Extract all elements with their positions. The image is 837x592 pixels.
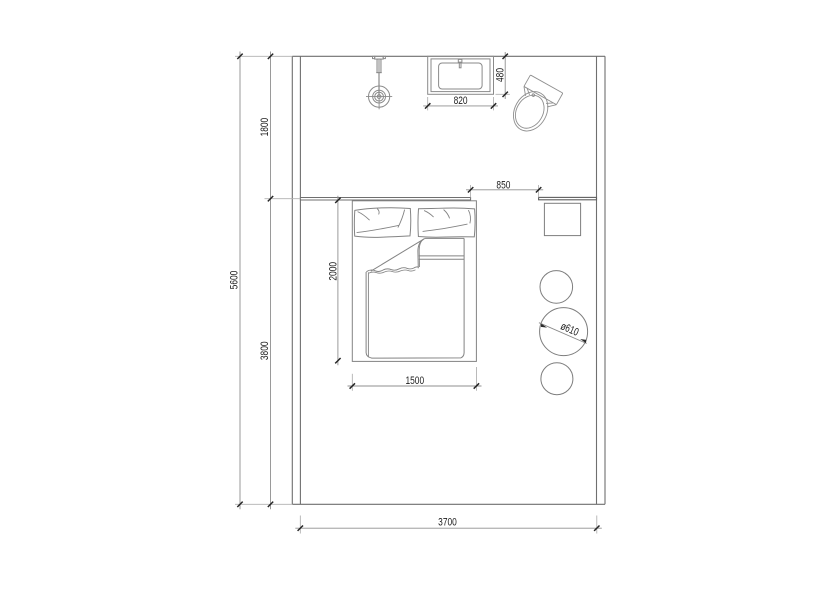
- svg-text:850: 850: [496, 179, 510, 192]
- svg-text:ø610: ø610: [559, 320, 581, 339]
- svg-text:5600: 5600: [229, 270, 242, 289]
- svg-text:2000: 2000: [327, 262, 340, 281]
- svg-text:1800: 1800: [259, 117, 272, 136]
- svg-text:480: 480: [494, 68, 507, 82]
- svg-text:820: 820: [454, 95, 468, 108]
- svg-text:3700: 3700: [438, 516, 457, 529]
- svg-text:3800: 3800: [259, 341, 272, 360]
- svg-text:1500: 1500: [405, 375, 424, 388]
